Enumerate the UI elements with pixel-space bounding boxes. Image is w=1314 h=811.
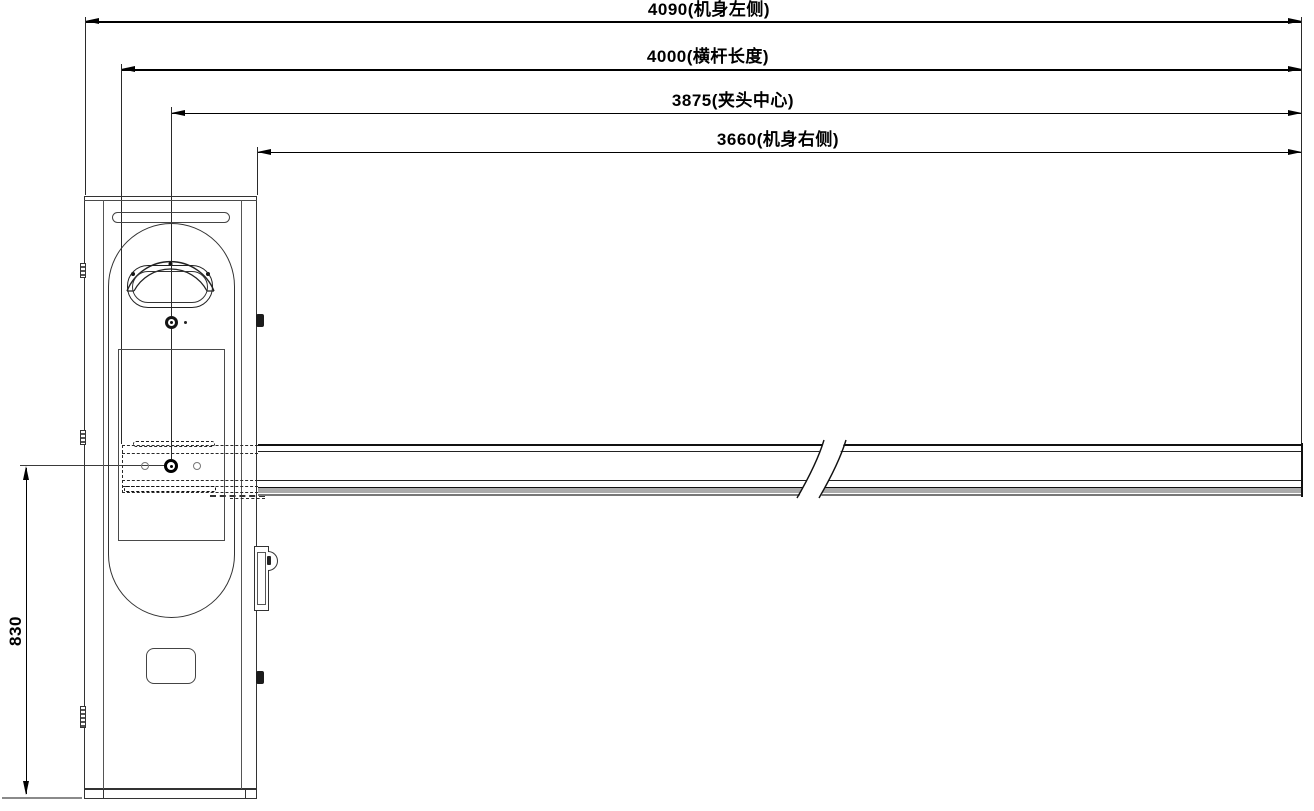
dimension-line-4000	[121, 69, 1302, 71]
dimension-line-3660	[257, 152, 1302, 154]
boom-hidden-line-3	[122, 480, 258, 481]
boom-hidden-line-2	[122, 453, 258, 454]
arrow-down-830	[23, 781, 29, 795]
arrow-left-4090	[85, 18, 99, 24]
arrow-left-4000	[121, 66, 135, 72]
door-lock-keyhole	[267, 556, 271, 565]
boom-hidden-line-5	[122, 492, 258, 493]
cabinet-left-panel-line	[103, 200, 104, 789]
dimension-label-3660: 3660(机身右侧)	[668, 131, 888, 149]
cabinet-top-cap-line	[84, 200, 257, 201]
clamp-top-dashed	[133, 441, 215, 447]
lamp-housing-inner	[132, 271, 208, 303]
hinge-bottom	[80, 706, 86, 728]
dimension-label-4000: 4000(横杆长度)	[598, 48, 818, 66]
top-vent-slot	[112, 212, 230, 223]
hinge-top	[80, 263, 86, 278]
extension-line-body-left	[85, 17, 86, 195]
boom-hidden-end	[122, 445, 123, 493]
small-dot	[184, 321, 187, 324]
clamp-lower-dashed-2	[230, 498, 265, 499]
service-door	[146, 648, 196, 684]
side-knob-upper	[256, 314, 264, 327]
side-knob-lower	[256, 671, 264, 684]
base-plate	[84, 789, 257, 799]
break-symbol	[780, 435, 870, 505]
boom-end-cap	[1301, 443, 1303, 497]
clamp-hole-left	[141, 462, 149, 470]
clamp-lower-dashed-1	[210, 495, 265, 497]
dimension-line-4090	[85, 21, 1302, 23]
dimension-label-4090: 4090(机身左侧)	[599, 1, 819, 19]
extension-line-boom-tip	[1301, 17, 1303, 443]
pivot-bolt-center	[170, 465, 173, 468]
extension-line-body-right	[257, 147, 258, 195]
clamp-hole-right	[193, 462, 201, 470]
arrow-up-830	[23, 466, 29, 480]
base-divider-right	[245, 789, 246, 799]
arrow-left-3875	[171, 110, 185, 116]
dimension-line-830	[26, 468, 28, 794]
bolt-upper-center	[170, 321, 173, 324]
ground-line	[2, 797, 82, 799]
boom-hidden-line-1	[122, 445, 258, 446]
dimension-label-3875: 3875(夹头中心)	[623, 92, 843, 110]
base-divider-left	[103, 789, 104, 799]
dimension-line-3875	[171, 113, 1302, 115]
door-lock-inner	[257, 552, 266, 605]
barrier-gate-drawing: 4090(机身左侧) 4000(横杆长度) 3875(夹头中心) 3660(机身…	[0, 0, 1314, 811]
hinge-middle	[80, 430, 86, 445]
dimension-label-830: 830	[7, 605, 25, 657]
clamp-bottom-dashed	[124, 486, 216, 492]
arrow-left-3660	[257, 149, 271, 155]
